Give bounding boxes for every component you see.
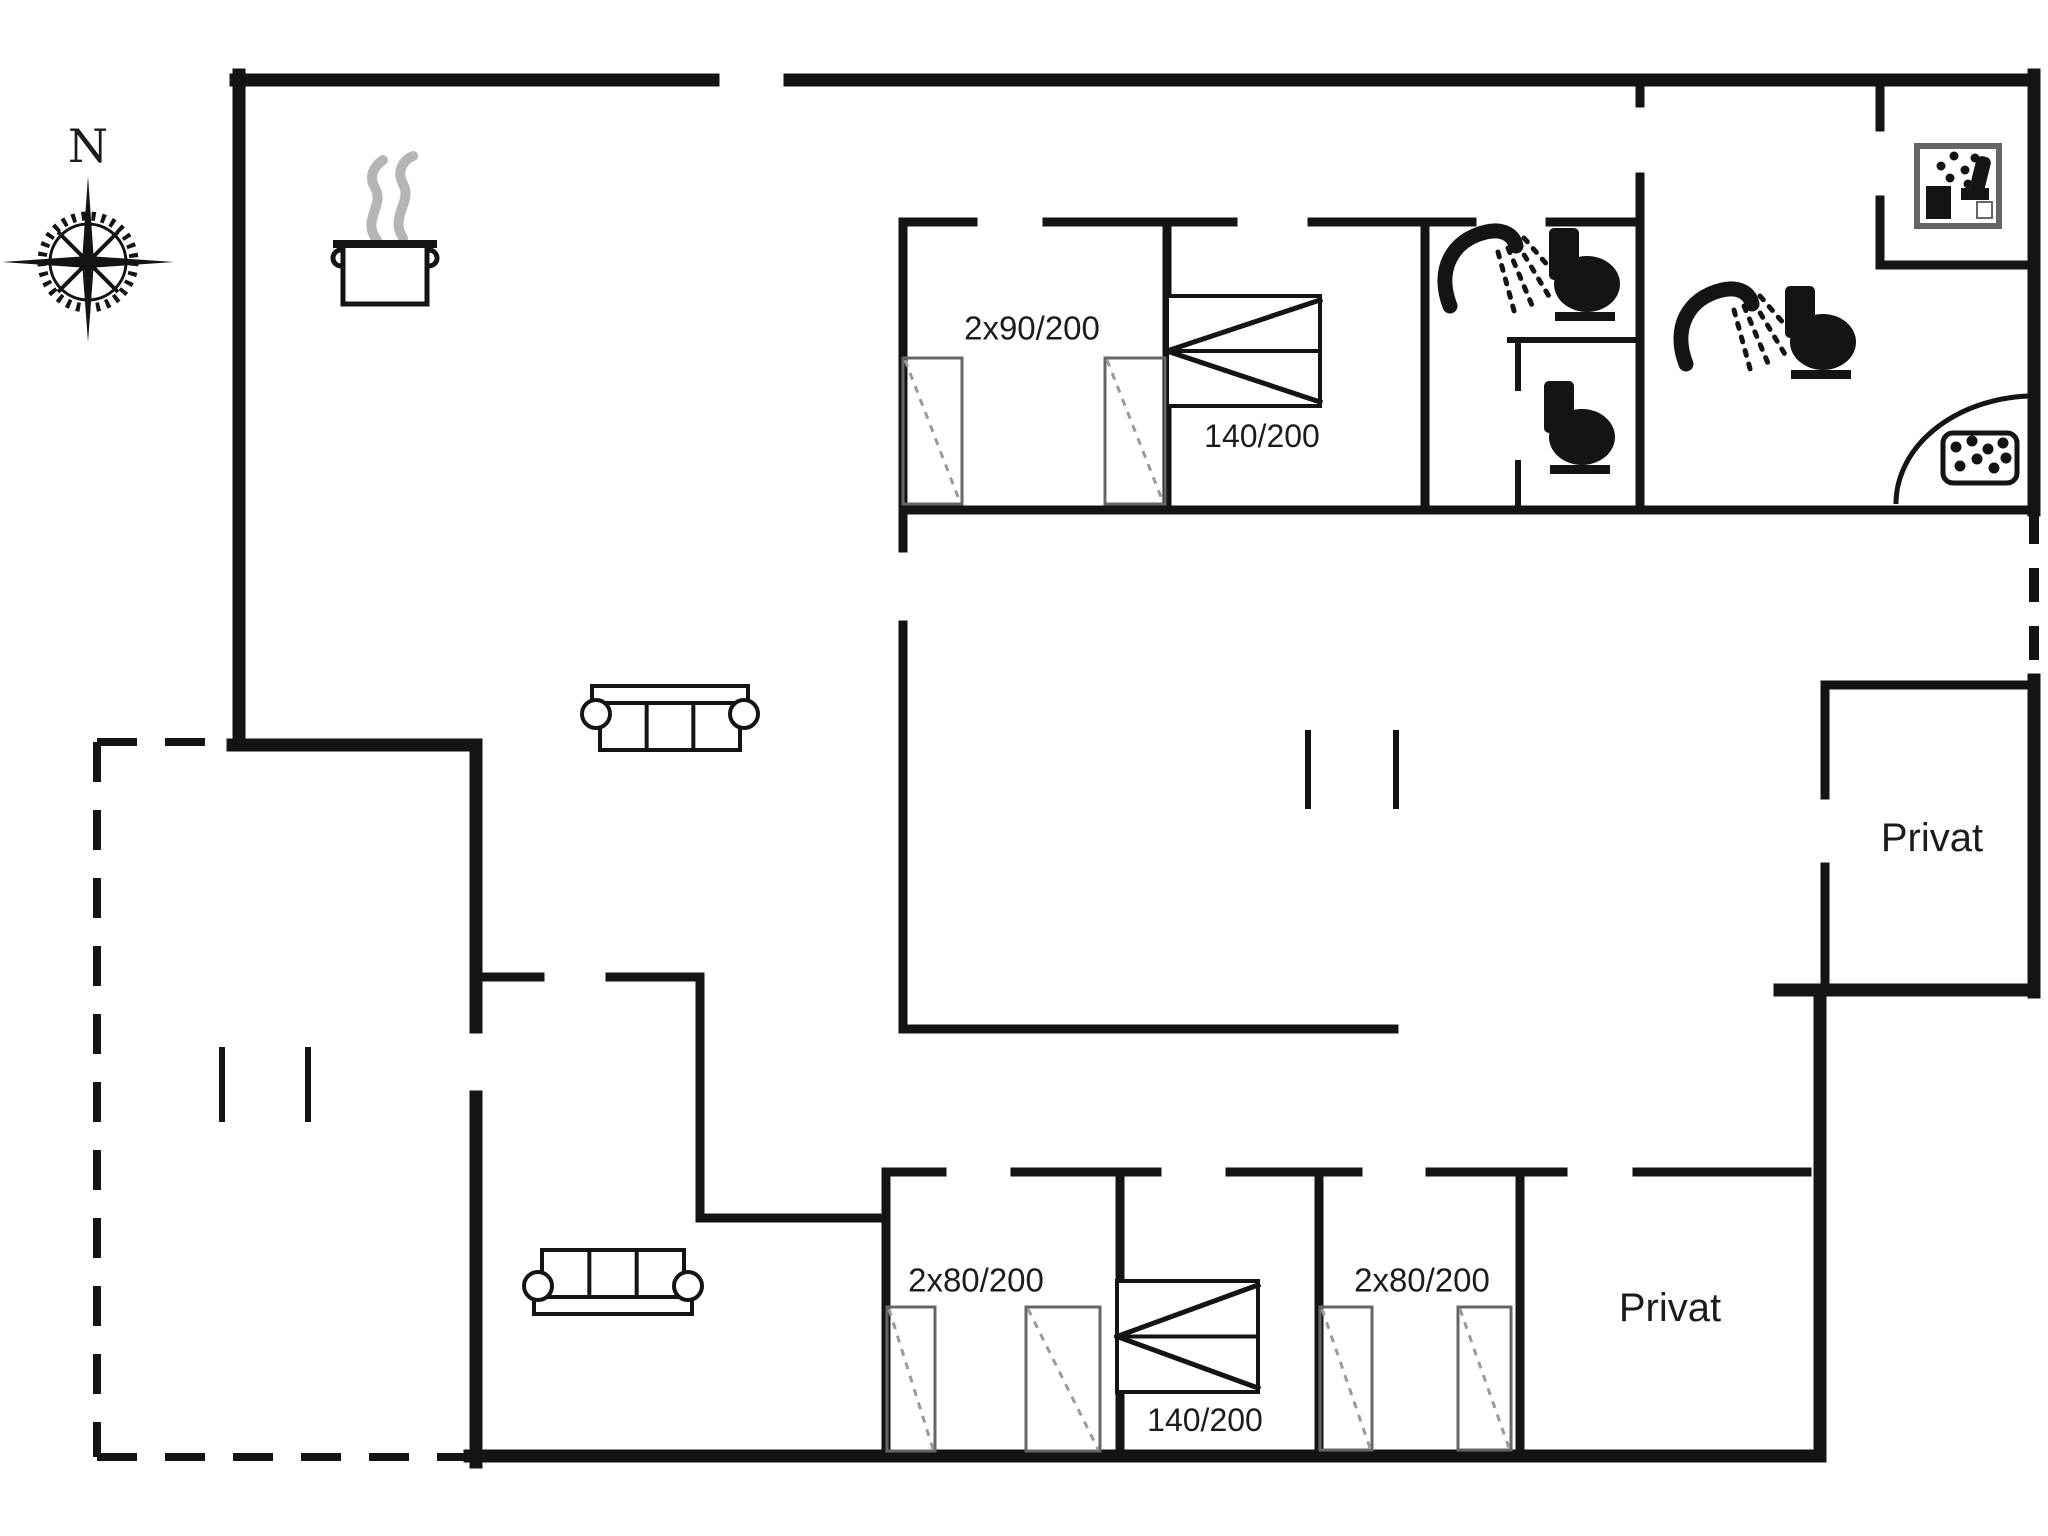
bed-size-label-top-bedroom-2: 140/200: [1204, 418, 1320, 454]
sofa-icon-lounge: [524, 1250, 702, 1314]
room-label-privat-upper: Privat: [1881, 816, 1983, 860]
sofa-icon-living: [582, 686, 758, 750]
floor-plan-canvas: N2x90/200140/2002x80/200140/2002x80/200P…: [0, 0, 2048, 1536]
floor-plan: N2x90/200140/2002x80/200140/2002x80/200P…: [0, 0, 2048, 1536]
double-bed-icon-top: [1167, 296, 1320, 406]
bed-size-label-top-bedroom-1: 2x90/200: [964, 310, 1100, 347]
compass-north-label: N: [68, 119, 108, 173]
washing-machine-icon: [1917, 146, 1999, 226]
double-bed-icon-bottom: [1117, 1281, 1258, 1392]
bed-size-label-bottom-bedroom-1: 2x80/200: [908, 1262, 1044, 1299]
room-label-privat-lower: Privat: [1619, 1286, 1721, 1330]
bed-size-label-bottom-bedroom-2: 140/200: [1147, 1402, 1263, 1438]
plan-background: [0, 0, 2048, 1536]
bed-size-label-bottom-bedroom-3: 2x80/200: [1354, 1262, 1490, 1299]
